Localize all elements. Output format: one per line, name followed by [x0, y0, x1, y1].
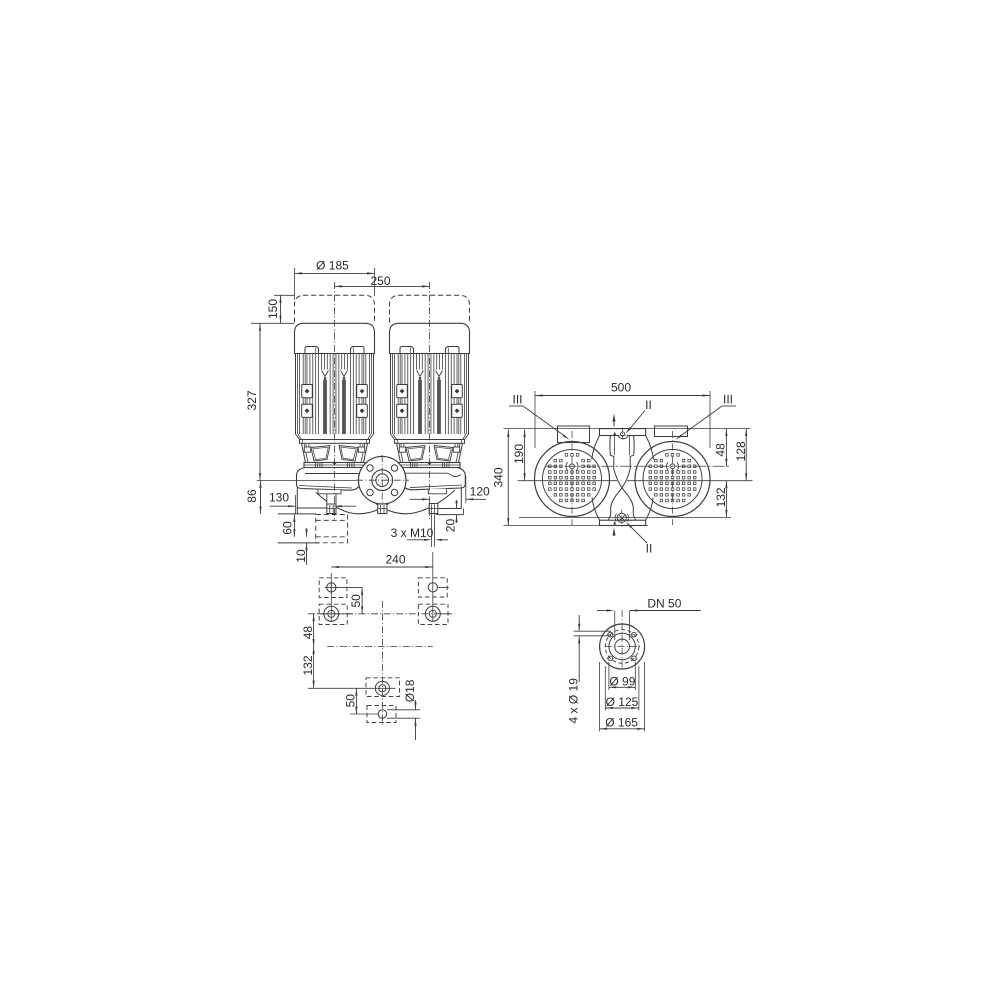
- svg-text:Ø18: Ø18: [403, 679, 417, 702]
- svg-text:20: 20: [443, 519, 457, 533]
- svg-text:Ø 165: Ø 165: [605, 715, 638, 729]
- svg-text:Ø 99: Ø 99: [609, 675, 635, 689]
- svg-text:132: 132: [714, 487, 728, 507]
- svg-text:120: 120: [470, 485, 490, 499]
- svg-text:III: III: [723, 393, 733, 407]
- svg-text:4 x Ø 19: 4 x Ø 19: [567, 678, 581, 724]
- svg-text:132: 132: [301, 655, 315, 675]
- svg-text:II: II: [645, 398, 652, 412]
- svg-text:50: 50: [349, 594, 363, 608]
- svg-text:50: 50: [344, 694, 358, 708]
- svg-text:500: 500: [611, 381, 631, 395]
- svg-text:60: 60: [281, 521, 295, 535]
- svg-text:240: 240: [385, 553, 405, 567]
- svg-text:128: 128: [734, 441, 748, 461]
- svg-text:DN 50: DN 50: [647, 597, 681, 611]
- svg-text:130: 130: [269, 491, 289, 505]
- svg-text:86: 86: [245, 489, 259, 503]
- svg-text:250: 250: [370, 274, 390, 288]
- svg-text:190: 190: [512, 444, 526, 464]
- svg-text:340: 340: [492, 467, 506, 487]
- svg-text:II: II: [646, 542, 653, 556]
- svg-text:Ø 185: Ø 185: [316, 259, 349, 273]
- svg-text:3 x M10: 3 x M10: [391, 526, 434, 540]
- svg-text:Ø 125: Ø 125: [606, 695, 639, 709]
- svg-text:150: 150: [266, 299, 280, 319]
- svg-text:327: 327: [245, 390, 259, 410]
- svg-text:48: 48: [301, 626, 315, 640]
- svg-text:10: 10: [294, 549, 308, 563]
- svg-text:48: 48: [714, 443, 728, 457]
- svg-text:III: III: [512, 393, 522, 407]
